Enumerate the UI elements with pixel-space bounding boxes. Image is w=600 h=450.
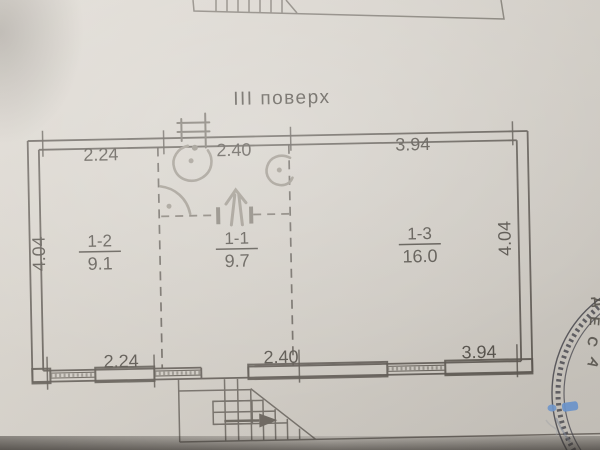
stamp-letter-2: Е: [587, 316, 600, 327]
dim-bottom-3: 3.94: [461, 342, 496, 363]
door-swing-arc-left: [161, 186, 191, 215]
room-1-3-id: 1-3: [407, 224, 432, 243]
plan-group: III поверх: [26, 81, 600, 445]
room-1-2-id: 1-2: [87, 231, 112, 250]
floor-title: III поверх: [233, 87, 331, 110]
room-labels: 1-2 9.1 1-1 9.7 1-3 16.0: [78, 224, 441, 274]
room-1-2-area: 9.1: [87, 253, 112, 273]
dim-top-3: 3.94: [395, 134, 430, 155]
staircase: [178, 370, 600, 442]
room-1-1-id: 1-1: [224, 229, 249, 248]
chimney-sketch: [177, 113, 210, 151]
room-1-1-area: 9.7: [224, 251, 249, 271]
dim-right: 4.04: [494, 221, 515, 256]
previous-floor-fragment: [193, 0, 504, 19]
dim-top-1: 2.24: [83, 144, 118, 165]
dim-top-2: 2.40: [216, 140, 251, 161]
stairs-up-pencil-arrow: [226, 190, 247, 225]
stamp-letter-1: Д: [591, 296, 600, 307]
dim-bottom-2: 2.40: [263, 347, 298, 368]
stamp-letter-3: С: [584, 334, 600, 348]
floor-plan-drawing: III поверх: [0, 0, 600, 450]
room-1-3-area: 16.0: [402, 246, 437, 267]
door-opening-line: [161, 206, 290, 226]
dim-bottom-1: 2.24: [103, 351, 138, 372]
photographed-floor-plan-page: III поверх: [0, 0, 600, 450]
dim-left: 4.04: [29, 236, 50, 271]
door-swing-arc-top: [173, 145, 212, 181]
stamp-letter-4: А: [584, 355, 600, 372]
